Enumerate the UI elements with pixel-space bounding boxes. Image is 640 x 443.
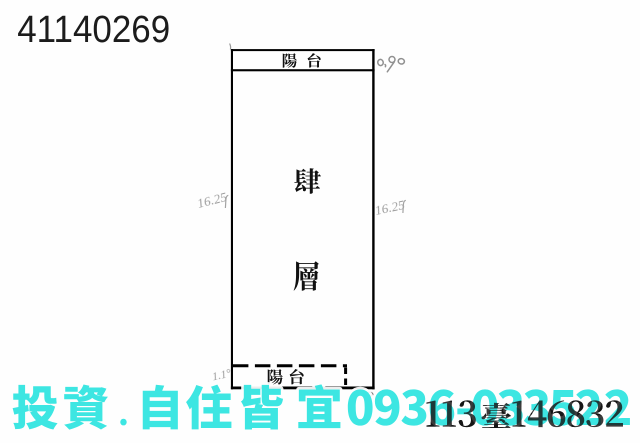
svg-text:41140269: 41140269 [17,8,170,50]
